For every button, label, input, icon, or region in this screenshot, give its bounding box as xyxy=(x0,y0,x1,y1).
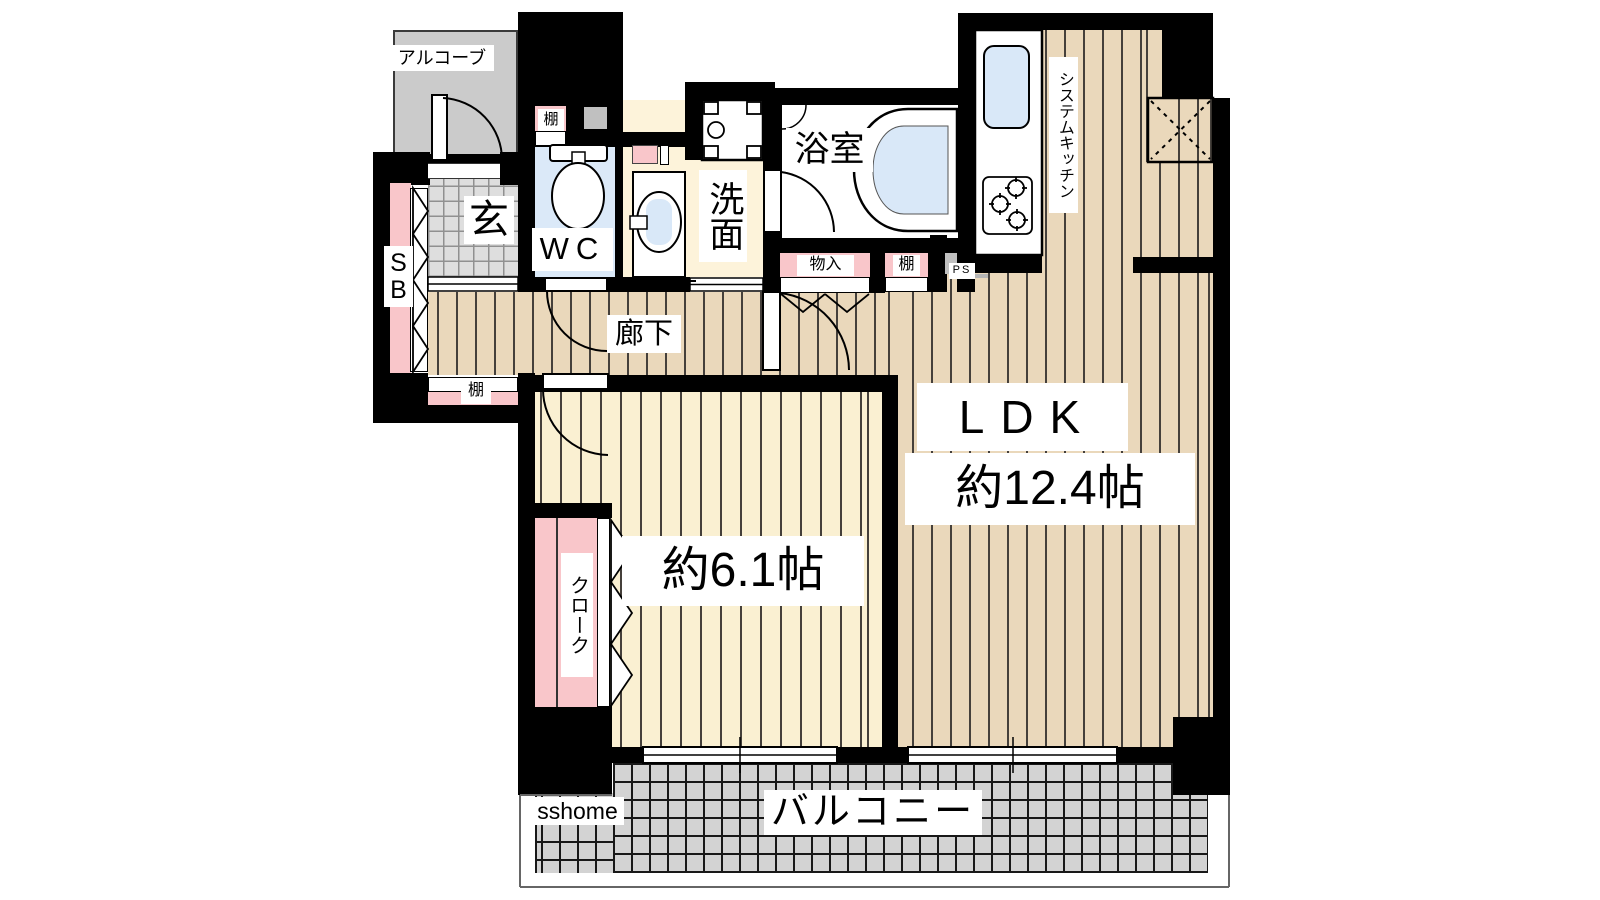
wc-door-arc xyxy=(547,291,607,351)
system-kitchen-label: システムキッチン xyxy=(1049,57,1078,213)
kitchen-sink-icon xyxy=(984,46,1029,128)
bathroom-label: 浴室 xyxy=(786,128,873,172)
ldk-door-leaf xyxy=(763,292,780,370)
bedroom-door-arc xyxy=(543,389,608,455)
vanity-icon xyxy=(702,100,763,160)
toilet-icon xyxy=(550,145,607,229)
ldk-size-label: 約12.4帖 xyxy=(905,453,1195,525)
bath-door-leaf xyxy=(764,170,781,232)
entrance-door-arc xyxy=(443,98,502,160)
storage-label: 物入 xyxy=(797,255,854,276)
bedroom-size-label: 約6.1帖 xyxy=(622,536,864,606)
floor-plan: アルコーブ 棚 玄 SB WC 洗面 浴室 システムキッチン 廊下 物入 棚 P… xyxy=(0,0,1600,900)
ldk-label: LDK xyxy=(917,383,1128,451)
wc-door-leaf xyxy=(545,278,607,291)
washing-machine-icon xyxy=(630,172,700,281)
alcove-label: アルコーブ xyxy=(390,45,494,71)
entrance-door-leaf xyxy=(432,95,447,160)
watermark-label: sshome xyxy=(531,797,624,825)
corridor-label: 廊下 xyxy=(607,315,681,353)
washroom-label: 洗面 xyxy=(699,170,747,262)
balcony-label: バルコニー xyxy=(764,790,982,835)
hatch-icon xyxy=(1148,98,1213,162)
shoebox-folding-doors xyxy=(413,188,428,372)
bath-door-arc xyxy=(781,172,834,232)
bedroom-door-leaf xyxy=(543,374,608,389)
shelf-hall-label: 棚 xyxy=(461,379,491,404)
wc-label: WC xyxy=(532,228,613,271)
entrance-label: 玄 xyxy=(464,196,514,244)
bath-corner-arc xyxy=(782,105,806,129)
shoe-box-label: SB xyxy=(384,246,413,307)
pipe-space-label: PS xyxy=(949,263,975,279)
shelf-kitchen-label: 棚 xyxy=(893,255,920,276)
cloak-label: クローク xyxy=(561,553,593,677)
shelf-top-label: 棚 xyxy=(538,109,564,131)
stove-icon xyxy=(983,177,1032,234)
